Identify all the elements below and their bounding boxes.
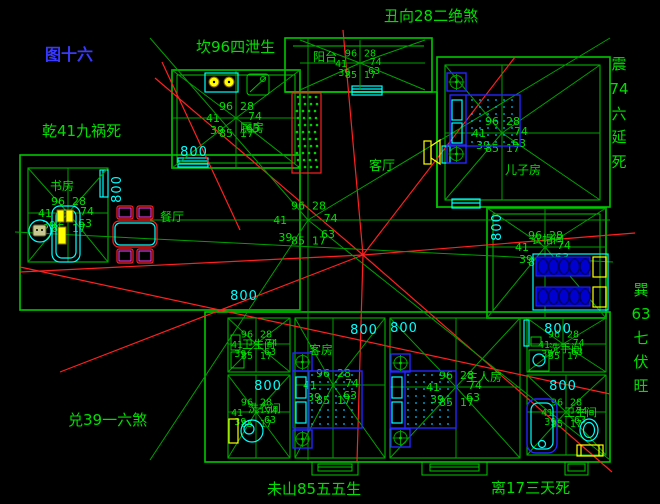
label-son-room: 儿子房 [505,162,541,177]
star-number: 96 [291,200,305,213]
annotation-kan: 坎96四泄生 [196,38,275,56]
star-number: 17 [72,222,86,235]
dim-laundry: 800 [254,379,282,394]
label-study: 书房 [50,178,74,193]
star-number: 17 [260,419,272,430]
svg-text:74: 74 [609,80,628,98]
annotation-qian: 乾41九祸死 [42,122,121,140]
star-son: 9628417439638517 [445,65,600,200]
star-number: 85 [345,70,357,81]
label-kitchen: 厨房 [240,120,264,135]
window-study [100,170,108,197]
star-number: 17 [364,70,376,81]
star-number: 17 [312,235,326,248]
label-wc-upper-left: 卫生间 [242,337,275,351]
star-number: 41 [273,214,287,227]
star-number: 74 [324,212,338,225]
star-number: 96 [219,100,233,113]
star-number: 96 [316,367,330,380]
dim-washroom: 800 [544,322,572,337]
label-living: 客厅 [369,158,395,174]
label-dining: 餐厅 [160,209,184,224]
bay-windows [312,462,588,475]
living-plant [292,93,321,173]
nightstand-compass-icon [391,354,410,372]
figure-number: 图十六 [45,45,93,64]
label-laundry: 洗衣间 [248,401,281,415]
dim-closet: 800 [490,213,505,241]
kitchen-stove [205,73,238,92]
svg-text:巽: 巽 [633,281,648,299]
label-bathroom: 卫生间 [564,405,597,419]
closet-wardrobes [533,254,608,310]
feng-shui-stars: 9628417439638517962841743963851796284174… [28,38,610,460]
label-closet: 衣帽间 [531,232,564,246]
label-balcony: 阳台 [313,49,337,64]
svg-text:63: 63 [631,305,650,323]
dim-guest: 800 [350,323,378,338]
dim-bathroom: 800 [549,379,577,394]
star-balcony: 9628417439638517 [300,40,425,90]
star-number: 85 [291,235,305,248]
annotation-li: 离17三天死 [491,479,570,497]
dining-table [113,221,157,247]
dim-left-wing: 800 [230,289,258,304]
star-number: 85 [439,396,453,409]
annotation-dui: 兑39一六煞 [68,411,147,429]
svg-text:旺: 旺 [633,377,648,395]
dining-chairs [117,206,153,263]
star-number: 85 [485,142,499,155]
label-master: 主人房 [466,369,502,384]
star-number: 96 [345,49,357,60]
svg-text:震: 震 [611,55,626,73]
dim-master: 800 [390,321,418,336]
star-number: 28 [312,200,326,213]
star-number: 85 [241,351,253,362]
annotation-zhen-column: 震 74 六 延 死 [609,55,628,171]
svg-text:伏: 伏 [633,353,648,371]
svg-text:七: 七 [633,329,648,347]
star-number: 85 [219,127,233,140]
star-number: 17 [506,142,520,155]
nightstand-compass-icon [391,429,410,447]
kitchen-sink [247,74,269,95]
annotation-wei-mountain: 未山85五五生 [267,480,361,498]
window-balcony [352,86,382,95]
dimension-labels: 800 800 800 800 800 800 800 800 800 [110,145,577,394]
dim-kitchen: 800 [180,145,208,160]
dim-study: 800 [110,175,125,203]
annotation-chou-facing: 丑向28二绝煞 [384,7,478,25]
star-number: 17 [260,351,272,362]
nightstand-compass-icon [293,430,312,448]
label-washroom: 洗手间 [549,341,582,355]
svg-text:延: 延 [611,128,626,146]
annotation-xun-column: 巽 63 七 伏 旺 [631,281,650,395]
label-guest: 客房 [309,342,333,357]
cad-floorplan-screen: 9628417439638517962841743963851796284174… [0,0,660,504]
floor-plan: 9628417439638517962841743963851796284174… [0,0,660,504]
star-number: 96 [485,115,499,128]
svg-text:死: 死 [611,153,626,171]
star-number: 17 [460,396,474,409]
study-fixtures [57,210,73,244]
svg-text:六: 六 [611,105,626,123]
nightstand-compass-icon [447,73,466,91]
